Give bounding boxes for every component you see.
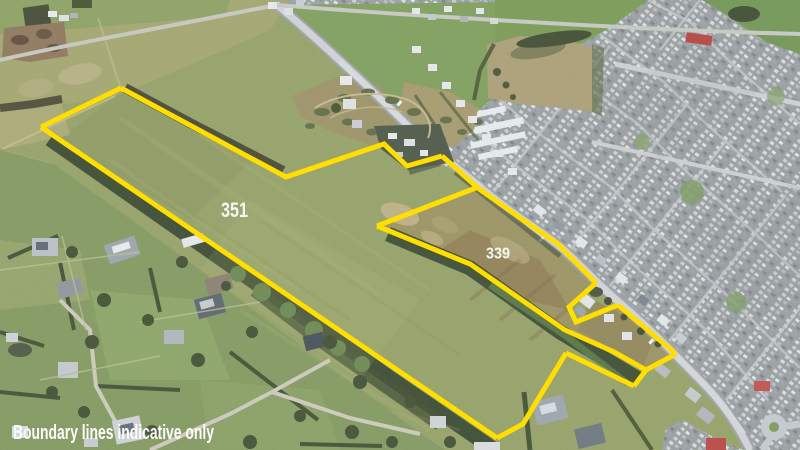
svg-text:339: 339 <box>486 246 510 263</box>
svg-text:Boundary lines indicative only: Boundary lines indicative only <box>13 421 214 444</box>
svg-text:351: 351 <box>221 199 248 222</box>
